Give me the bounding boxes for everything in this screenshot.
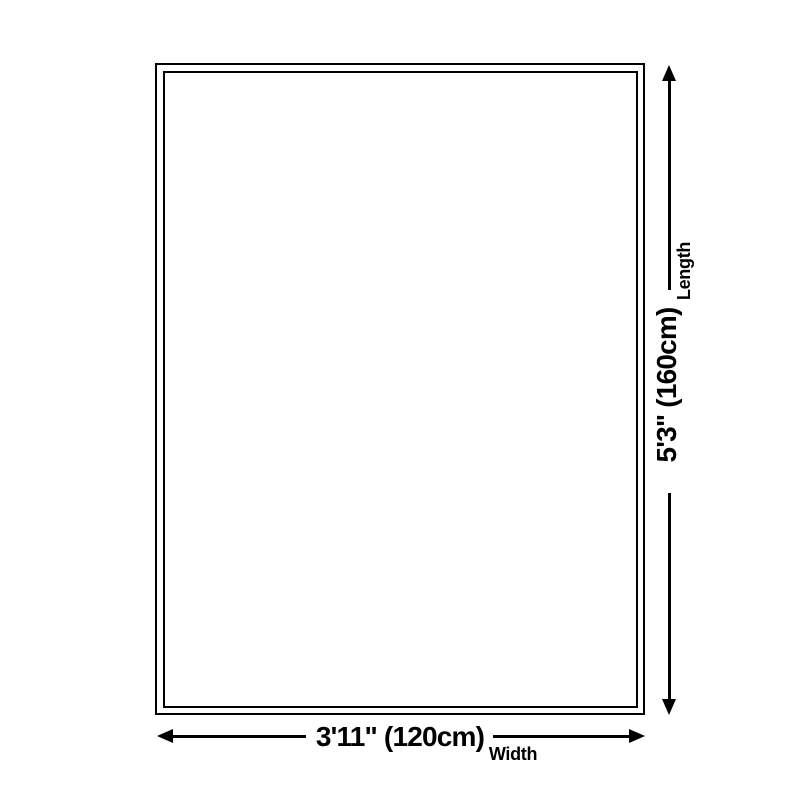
length-axis-label: Length bbox=[675, 242, 693, 300]
length-line-upper bbox=[668, 79, 671, 290]
width-value: 3'11" (120cm) bbox=[316, 723, 484, 751]
rug-inner-outline bbox=[163, 71, 638, 708]
width-line-left bbox=[172, 735, 306, 738]
arrow-down-icon bbox=[662, 699, 676, 715]
arrow-right-icon bbox=[629, 729, 645, 743]
rug-size-diagram: Length 5'3" (160cm) 3'11" (120cm) Width bbox=[0, 0, 800, 800]
rug-outline bbox=[155, 63, 645, 715]
arrow-left-icon bbox=[157, 729, 173, 743]
length-value: 5'3" (160cm) bbox=[653, 307, 681, 462]
width-axis-label: Width bbox=[489, 745, 537, 763]
length-line-lower bbox=[668, 493, 671, 700]
width-line-right bbox=[493, 735, 629, 738]
